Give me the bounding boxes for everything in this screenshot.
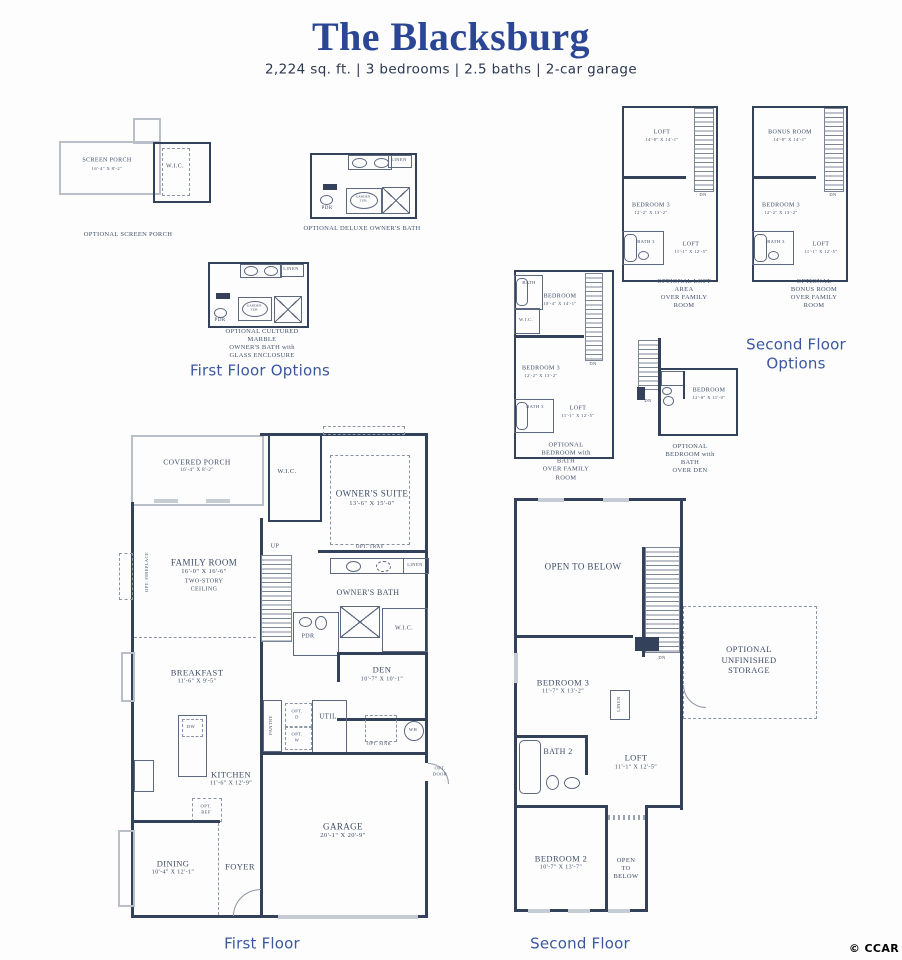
room-dims: 11'-1" X 12'-5" — [615, 764, 657, 772]
shower-icon — [340, 606, 380, 638]
room-dims: 12'-2" X 13'-2" — [524, 373, 557, 379]
room-label: DW — [187, 724, 195, 730]
room-label: BATH 3 — [767, 239, 785, 245]
tub-icon — [624, 234, 637, 262]
room-dims: 11'-6" X 12'-9" — [210, 780, 252, 788]
room-dims: 10'-7" X 10'-1" — [361, 676, 403, 684]
plan-caption: OPTIONAL LOFT AREA OVER FAMILY ROOM — [655, 278, 713, 311]
wall — [622, 176, 686, 179]
toilet-icon — [768, 251, 779, 260]
opt-sink-icon — [376, 561, 391, 572]
shower-icon — [274, 296, 302, 323]
room-dims: 11'-7" X 13'-2" — [542, 688, 584, 696]
room-label: GARDEN TUB — [247, 304, 262, 313]
room-label: BEDROOM 3 — [522, 365, 560, 373]
section-label-second-floor-options: Second Floor Options — [746, 335, 846, 373]
section-label-first-floor-options: First Floor Options — [190, 362, 330, 381]
plan-caption: OPTIONAL BEDROOM with BATH OVER DEN — [663, 443, 718, 476]
room-dims: 11'-6" X 9'-5" — [178, 678, 217, 686]
room-label: OPT. REF — [201, 803, 212, 814]
staircase — [261, 555, 292, 642]
room-dims: 11'-1" X 12'-5" — [561, 413, 594, 419]
room-label: BREAKFAST — [171, 668, 224, 679]
room-label: BATH 3 — [526, 404, 544, 410]
room-label: PDR — [322, 206, 333, 212]
room-label: BONUS ROOM — [768, 129, 812, 137]
room-label: OWNER'S SUITE — [336, 488, 409, 499]
room-label: OPT. TRAY — [356, 545, 384, 551]
stair-direction: DN — [658, 655, 665, 661]
sink-icon — [374, 158, 389, 168]
room-dims: 10'-4" X 14'-1" — [543, 301, 576, 307]
window — [538, 498, 564, 502]
staircase — [638, 340, 660, 390]
stair-direction: DN — [829, 192, 836, 198]
page-title: The Blacksburg — [312, 12, 590, 62]
room-label: LOFT — [654, 129, 671, 137]
room-label: SCREEN PORCH — [82, 157, 131, 165]
sink-icon — [564, 777, 580, 789]
room-label: OPT. W — [292, 731, 303, 742]
copyright: © CCAR — [849, 942, 899, 956]
bay-window — [118, 830, 135, 907]
vanity — [330, 558, 404, 574]
plan-optional-bonus-room: BONUS ROOM 14'-0" X 14'-1" BEDROOM 3 12'… — [752, 103, 872, 308]
wall — [585, 735, 588, 775]
room-label: GARAGE — [323, 821, 363, 832]
room-label: BEDROOM 2 — [535, 854, 587, 865]
room-dims: 10'-7" X 13'-7" — [540, 864, 582, 872]
bay-window — [121, 652, 135, 702]
floor-label-second: Second Floor — [530, 935, 630, 954]
sink-icon — [662, 387, 672, 395]
room-label: OPT. FIREPLACE — [144, 552, 150, 592]
utility-walls — [312, 700, 347, 754]
room-label: UTIL — [319, 713, 337, 722]
toilet-icon — [546, 775, 559, 790]
garage-door — [278, 915, 418, 920]
floor-label-first: First Floor — [224, 935, 300, 954]
plan-caption: OPTIONAL BEDROOM with BATH OVER FAMILY R… — [535, 442, 597, 483]
toilet-icon — [638, 251, 649, 260]
toilet-icon — [315, 616, 327, 630]
room-dims: 16'-4" X 8'-2" — [180, 468, 213, 474]
sink-icon — [244, 266, 258, 276]
plan-first-floor: COVERED PORCH 16'-4" X 8'-2" W.I.C. OWNE… — [118, 425, 450, 925]
sink-icon — [346, 561, 361, 572]
room-dims: 10'-4" X 12'-1" — [152, 869, 194, 877]
sink-icon — [264, 266, 278, 276]
wall — [323, 184, 337, 190]
wall — [337, 652, 340, 682]
room-label: GARDEN TUB — [356, 195, 371, 204]
window — [603, 498, 629, 502]
open-below-railing — [608, 815, 645, 820]
room-label: LINEN — [391, 157, 407, 163]
room-label: OPT. D — [292, 708, 303, 719]
wic-shelving — [162, 148, 190, 196]
door-swing — [233, 889, 261, 916]
room-label: OWNER'S BATH — [337, 588, 400, 598]
room-label: OPEN TO BELOW — [545, 561, 622, 572]
room-dims: 12'-0" X 11'-0" — [692, 395, 725, 401]
toilet-icon — [214, 308, 227, 318]
room-label: DEN — [373, 665, 392, 676]
wall — [683, 371, 685, 399]
room-label: W.I.C. — [166, 163, 184, 171]
staircase — [824, 108, 844, 192]
plan-caption: OPTIONAL SCREEN PORCH — [84, 231, 172, 239]
stair-direction: DN — [699, 192, 706, 198]
room-label: W.I.C. — [277, 468, 296, 476]
room-label: BATH 3 — [637, 239, 655, 245]
room-dims: 16'-4" X 8'-2" — [92, 166, 123, 172]
room-label: LOFT — [683, 241, 700, 249]
wall — [514, 498, 517, 912]
window — [528, 909, 550, 913]
room-label: OPT. DOOR — [433, 765, 447, 776]
staircase — [585, 273, 603, 361]
room-label: BEDROOM 3 — [762, 202, 800, 210]
room-label: PDR — [302, 633, 315, 641]
room-label: W.I.C. — [395, 625, 413, 633]
room-label: BEDROOM — [544, 293, 577, 301]
room-dims: 14'-0" X 14'-1" — [773, 137, 806, 143]
plan-specs: 2,224 sq. ft. | 3 bedrooms | 2.5 baths |… — [265, 62, 637, 79]
plan-optional-marble-bath: LINEN GARDEN TUB PDR OPTIONAL CULTURED M… — [195, 255, 340, 365]
room-label: LINEN — [407, 562, 423, 568]
wall — [645, 808, 648, 912]
room-dims: 11'-1" X 12'-5" — [804, 249, 837, 255]
wall — [425, 433, 428, 918]
window — [568, 909, 590, 913]
wall — [517, 635, 633, 638]
window — [154, 499, 178, 503]
wall — [216, 293, 230, 299]
room-dims: 14'-0" X 14'-1" — [645, 137, 678, 143]
room-label: DINING — [157, 859, 190, 870]
room-label: LINEN — [283, 266, 299, 272]
stair-direction: DN — [644, 398, 651, 404]
room-dims: 13'-6" X 15'-0" — [349, 500, 394, 508]
room-label: LOFT — [625, 753, 648, 764]
wall — [514, 335, 584, 338]
room-label: PDR — [215, 318, 226, 324]
room-label: OPEN TO BELOW — [613, 857, 638, 881]
room-dims: 12'-2" X 13'-2" — [764, 210, 797, 216]
room-label: BEDROOM 3 — [537, 678, 589, 689]
room-label: LOFT — [570, 405, 587, 413]
wall — [517, 735, 587, 738]
room-label: COVERED PORCH — [163, 457, 231, 466]
bay-window — [323, 426, 405, 435]
wall — [337, 652, 428, 655]
two-story-boundary — [134, 637, 256, 638]
plan-caption: OPTIONAL BONUS ROOM OVER FAMILY ROOM — [785, 278, 843, 311]
room-label: KITCHEN — [211, 770, 251, 781]
shower-icon — [661, 371, 685, 386]
room-dims: 20'-1" X 20'-9" — [320, 832, 365, 840]
room-label: LOFT — [813, 241, 830, 249]
plan-caption: OPTIONAL CULTURED MARBLE OWNER'S BATH wi… — [223, 328, 301, 361]
wall — [752, 176, 816, 179]
sink-icon — [352, 158, 367, 168]
shower-icon — [382, 187, 410, 214]
wall — [260, 752, 428, 755]
wall — [635, 637, 659, 651]
staircase — [694, 108, 714, 192]
wall — [645, 805, 683, 808]
stair-direction: DN — [589, 361, 596, 367]
room-dims: 12'-2" X 13'-2" — [634, 210, 667, 216]
range-icon — [134, 760, 154, 792]
window — [608, 909, 630, 913]
room-label: WH — [409, 727, 417, 733]
plan-optional-screen-porch: SCREEN PORCH 16'-4" X 8'-2" W.I.C. OPTIO… — [55, 115, 275, 245]
room-label: BEDROOM 3 — [632, 202, 670, 210]
wall — [605, 808, 608, 909]
toilet-icon — [320, 195, 333, 205]
foyer-boundary — [218, 823, 219, 915]
room-label: PANTRY — [268, 715, 274, 735]
window — [514, 653, 518, 683]
plan-optional-loft-area: LOFT 14'-0" X 14'-1" BEDROOM 3 12'-2" X … — [622, 103, 742, 308]
wall — [131, 820, 220, 823]
plan-second-floor: OPEN TO BELOW DN BEDROOM 3 11'-7" X 13'-… — [508, 493, 848, 933]
opt-fireplace-outline — [119, 553, 133, 600]
plan-optional-bedroom-over-family: BATH BEDROOM 10'-4" X 14'-1" W.I.C. BEDR… — [508, 265, 628, 480]
wic-walls — [268, 433, 322, 522]
chimney-walls — [133, 118, 161, 144]
room-label: FOYER — [225, 862, 255, 873]
plan-caption: OPTIONAL DELUXE OWNER'S BATH — [303, 225, 420, 233]
room-label: FAMILY ROOM — [171, 557, 237, 568]
tub-icon — [519, 740, 541, 794]
room-label: BEDROOM — [693, 387, 726, 395]
room-label: LINEN — [616, 696, 622, 712]
toilet-icon — [663, 396, 674, 406]
room-dims: 16'-0" X 16'-6" — [181, 568, 226, 576]
room-note: TWO-STORY CEILING — [185, 579, 224, 594]
window — [206, 499, 230, 503]
room-label: OPTIONAL UNFINISHED STORAGE — [722, 644, 777, 676]
sink-icon — [299, 617, 312, 627]
tub-icon — [754, 234, 767, 262]
opt-sink-outline — [365, 715, 397, 742]
room-label: OPT. SINK — [367, 741, 392, 747]
plan-optional-deluxe-owners-bath: LINEN GARDEN TUB PDR OPTIONAL DELUXE OWN… — [300, 140, 435, 240]
floor-plan-sheet: The Blacksburg 2,224 sq. ft. | 3 bedroom… — [0, 0, 902, 960]
plan-optional-bedroom-over-den: DN BEDROOM 12'-0" X 11'-0" OPTIONAL BEDR… — [630, 335, 745, 470]
room-label: BATH 2 — [543, 747, 572, 757]
wall — [517, 805, 608, 808]
room-label: BATH — [522, 280, 535, 286]
room-label: W.I.C. — [519, 317, 533, 323]
room-dims: 11'-1" X 12'-5" — [674, 249, 707, 255]
stair-direction: UP — [271, 543, 279, 551]
